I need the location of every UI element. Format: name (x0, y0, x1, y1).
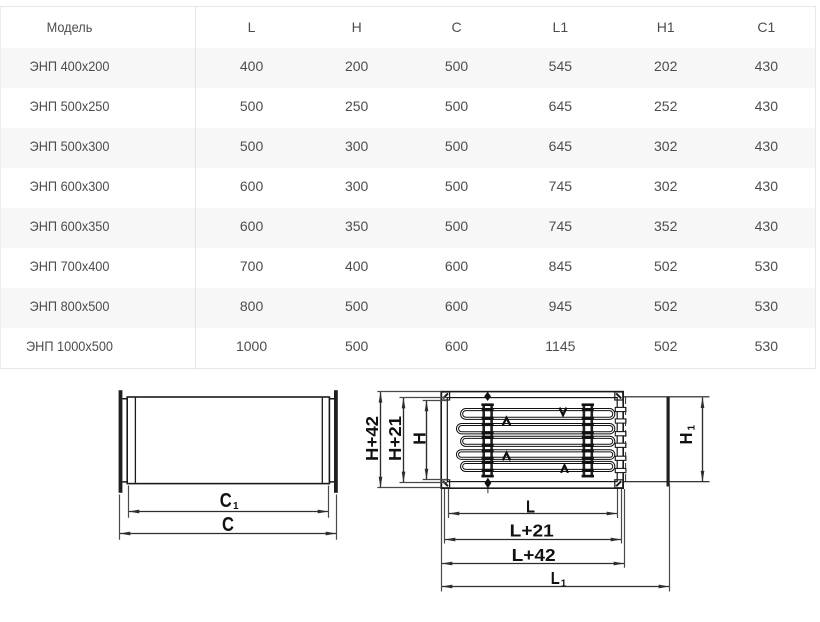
svg-text:H+42: H+42 (362, 416, 382, 461)
svg-text:L+42: L+42 (512, 545, 556, 565)
svg-text:1: 1 (687, 425, 698, 431)
svg-text:L+21: L+21 (510, 520, 554, 540)
svg-text:H: H (410, 432, 430, 445)
svg-text:H: H (676, 433, 696, 445)
svg-text:L: L (551, 568, 560, 588)
svg-text:1: 1 (561, 579, 567, 590)
svg-text:C: C (220, 490, 232, 512)
svg-text:1: 1 (233, 501, 239, 512)
svg-text:L: L (526, 496, 535, 516)
svg-text:C: C (222, 514, 234, 536)
svg-text:H+21: H+21 (385, 416, 405, 461)
